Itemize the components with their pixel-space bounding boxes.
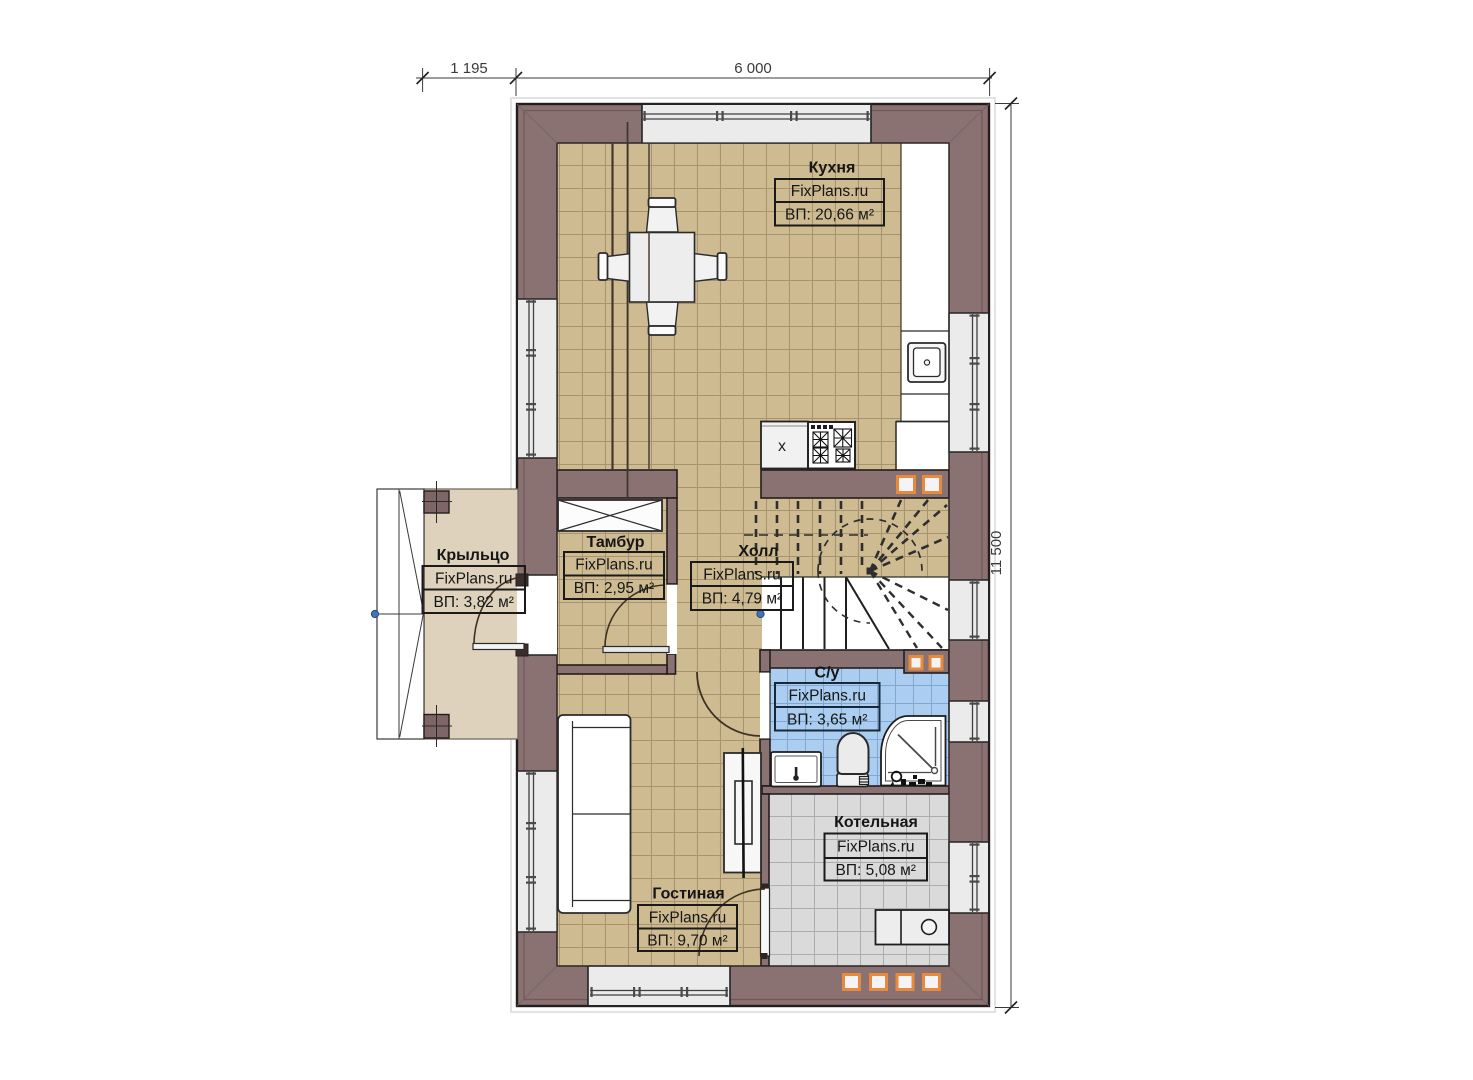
svg-text:ВП: 3,82 м²: ВП: 3,82 м² — [434, 594, 514, 611]
svg-text:x: x — [778, 438, 786, 455]
svg-text:FixPlans.ru: FixPlans.ru — [791, 183, 869, 200]
svg-text:FixPlans.ru: FixPlans.ru — [837, 839, 915, 856]
svg-text:ВП: 2,95 м²: ВП: 2,95 м² — [574, 580, 654, 597]
svg-text:FixPlans.ru: FixPlans.ru — [703, 567, 781, 584]
svg-text:Тамбур: Тамбур — [586, 534, 644, 551]
svg-text:Гостиная: Гостиная — [652, 886, 724, 903]
svg-text:ВП: 5,08 м²: ВП: 5,08 м² — [836, 862, 916, 879]
svg-text:1 195: 1 195 — [450, 60, 488, 77]
svg-text:FixPlans.ru: FixPlans.ru — [575, 557, 653, 574]
svg-text:С/у: С/у — [815, 665, 840, 682]
svg-text:6 000: 6 000 — [734, 60, 772, 77]
svg-text:Кухня: Кухня — [809, 160, 856, 177]
svg-text:ВП: 20,66 м²: ВП: 20,66 м² — [785, 207, 874, 224]
svg-text:Котельная: Котельная — [834, 814, 918, 831]
svg-text:ВП: 9,70 м²: ВП: 9,70 м² — [647, 933, 727, 950]
svg-text:ВП: 3,65 м²: ВП: 3,65 м² — [787, 712, 867, 729]
svg-text:FixPlans.ru: FixPlans.ru — [788, 688, 866, 705]
svg-text:FixPlans.ru: FixPlans.ru — [435, 571, 513, 588]
svg-text:Крыльцо: Крыльцо — [437, 547, 510, 564]
svg-text:FixPlans.ru: FixPlans.ru — [649, 910, 727, 927]
svg-text:Холл: Холл — [738, 543, 778, 560]
svg-text:ВП: 4,79 м²: ВП: 4,79 м² — [702, 591, 782, 608]
svg-text:11 500: 11 500 — [988, 531, 1005, 576]
